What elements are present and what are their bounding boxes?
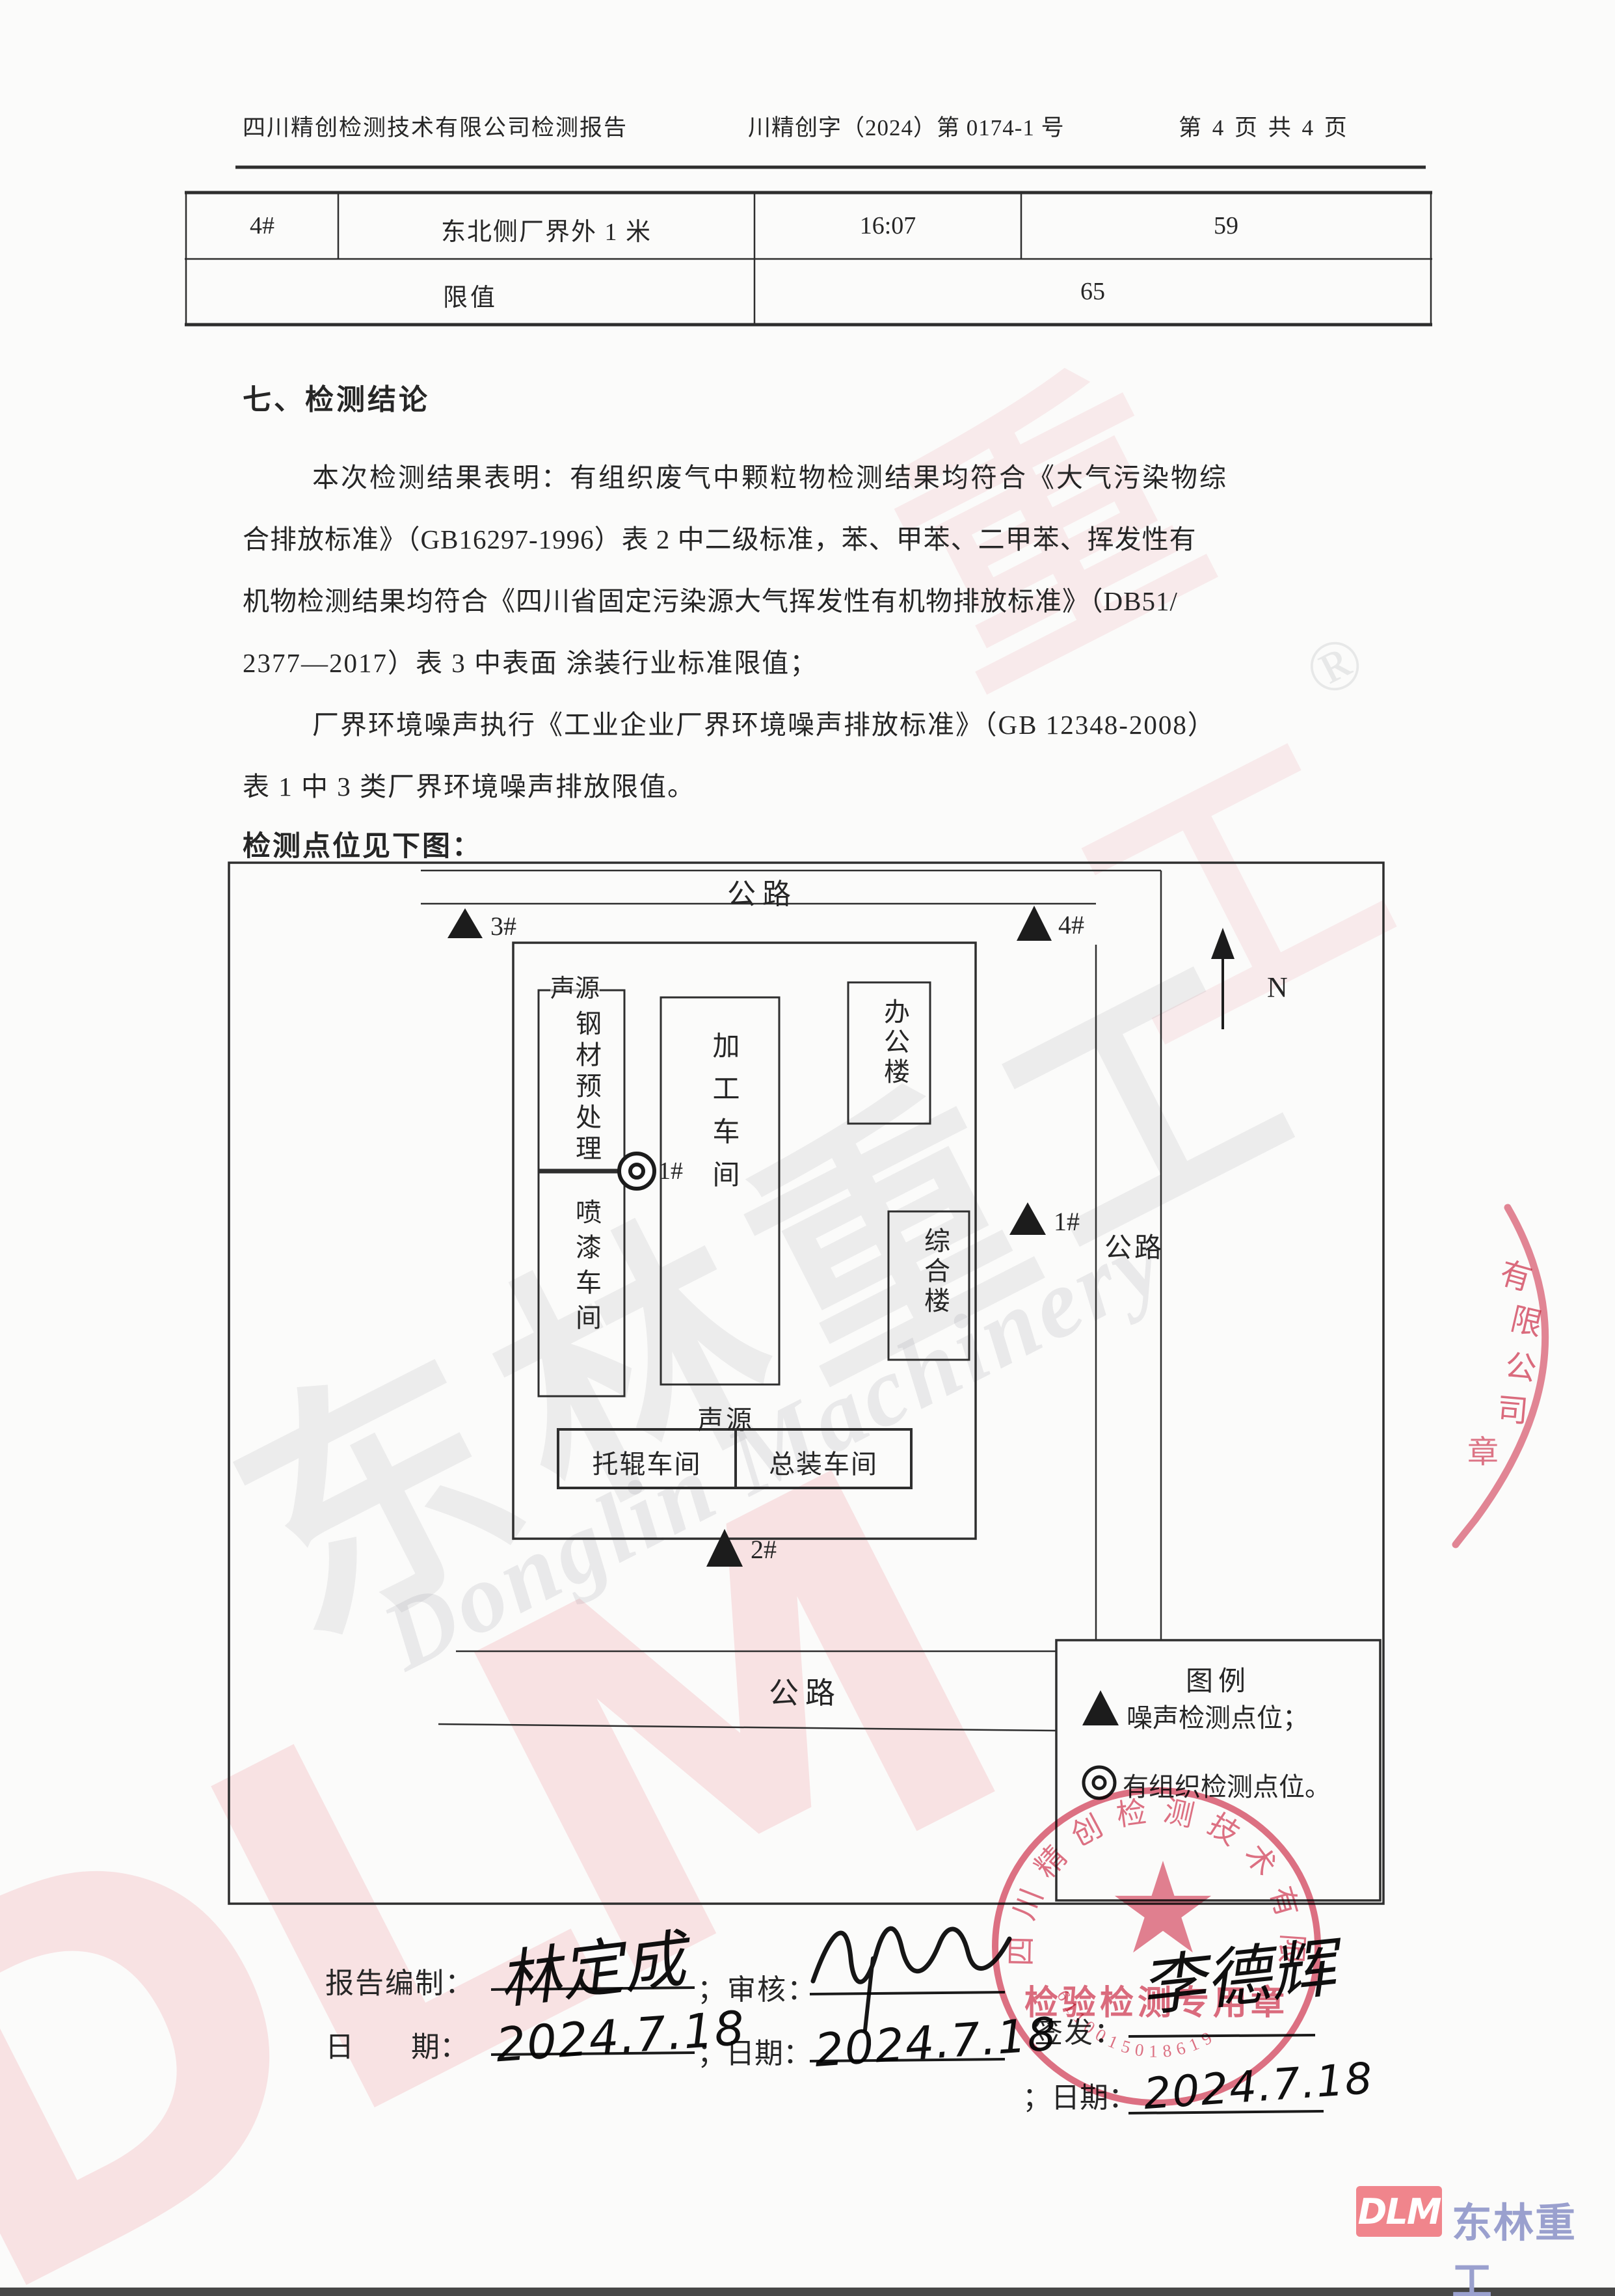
- report-page: DLM 重工 东林重工 Donglin Machinery ®: [0, 0, 1615, 2296]
- edge-seal-char-5: 章: [1467, 1426, 1499, 1472]
- edge-seal-char-4: 司: [1495, 1383, 1530, 1431]
